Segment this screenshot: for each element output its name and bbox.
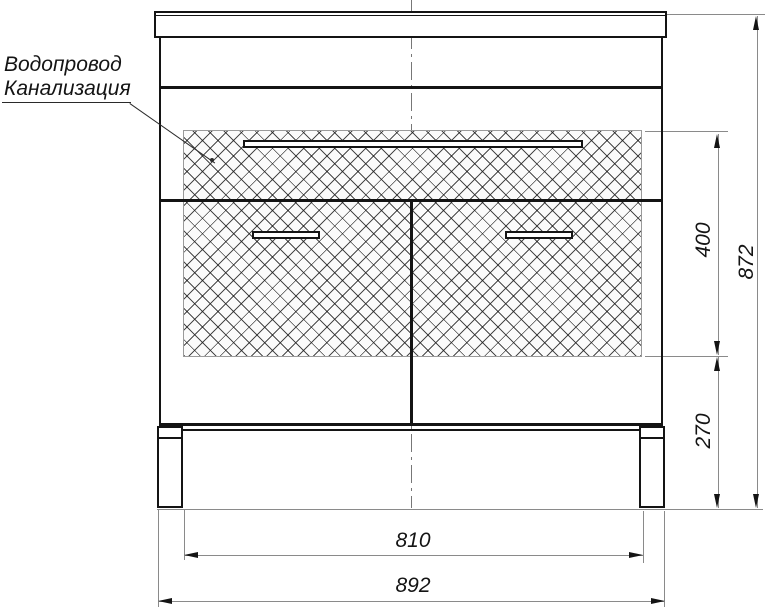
dim-label-872: 872 xyxy=(735,244,759,279)
arrow-872-top xyxy=(753,16,759,30)
technical-drawing-canvas: 400 270 872 810 892 Водопровод Канализац… xyxy=(0,0,768,608)
toe-kick-line xyxy=(183,429,639,431)
ext-line-right-inner xyxy=(643,511,644,563)
arrow-892-right xyxy=(651,598,665,604)
callout-sewerage: Канализация xyxy=(4,77,131,101)
dim-line-270 xyxy=(718,357,719,508)
ext-line-hatch-top xyxy=(645,131,728,132)
left-door-handle xyxy=(252,231,320,239)
ext-line-left-outer xyxy=(158,510,159,607)
arrow-872-bottom xyxy=(753,494,759,508)
callout-leader-dot xyxy=(210,158,214,162)
dim-label-270: 270 xyxy=(692,413,716,448)
ext-line-right-outer xyxy=(664,511,665,607)
right-leg-adjuster-line xyxy=(641,437,663,439)
cabinet-right-side xyxy=(661,38,663,426)
door-divider xyxy=(410,202,413,423)
dim-line-400 xyxy=(718,134,719,355)
arrow-892-left xyxy=(158,598,172,604)
dim-label-810: 810 xyxy=(395,529,430,553)
arrow-400-top xyxy=(714,134,720,148)
arrow-270-top xyxy=(714,357,720,371)
dim-label-400: 400 xyxy=(692,222,716,257)
arrow-810-left xyxy=(184,552,198,558)
callout-underline xyxy=(2,102,131,103)
arrow-270-bottom xyxy=(714,494,720,508)
ext-line-countertop-top xyxy=(667,14,765,15)
floor-line xyxy=(157,509,763,510)
countertop-edge-line xyxy=(156,15,665,16)
dim-label-892: 892 xyxy=(395,574,430,598)
callout-water-supply: Водопровод xyxy=(4,53,122,77)
dim-line-892 xyxy=(158,601,665,602)
right-door-handle xyxy=(505,231,573,239)
arrow-400-bottom xyxy=(714,341,720,355)
left-leg-adjuster-line xyxy=(159,437,181,439)
right-leg xyxy=(639,426,665,508)
dim-line-810 xyxy=(184,555,643,556)
left-leg xyxy=(157,426,183,508)
drawer-handle xyxy=(243,140,583,148)
arrow-810-right xyxy=(629,552,643,558)
cabinet-bottom-line xyxy=(159,423,663,426)
cabinet-left-side xyxy=(159,38,161,426)
countertop xyxy=(154,11,667,38)
drawer-top-line xyxy=(159,86,663,89)
